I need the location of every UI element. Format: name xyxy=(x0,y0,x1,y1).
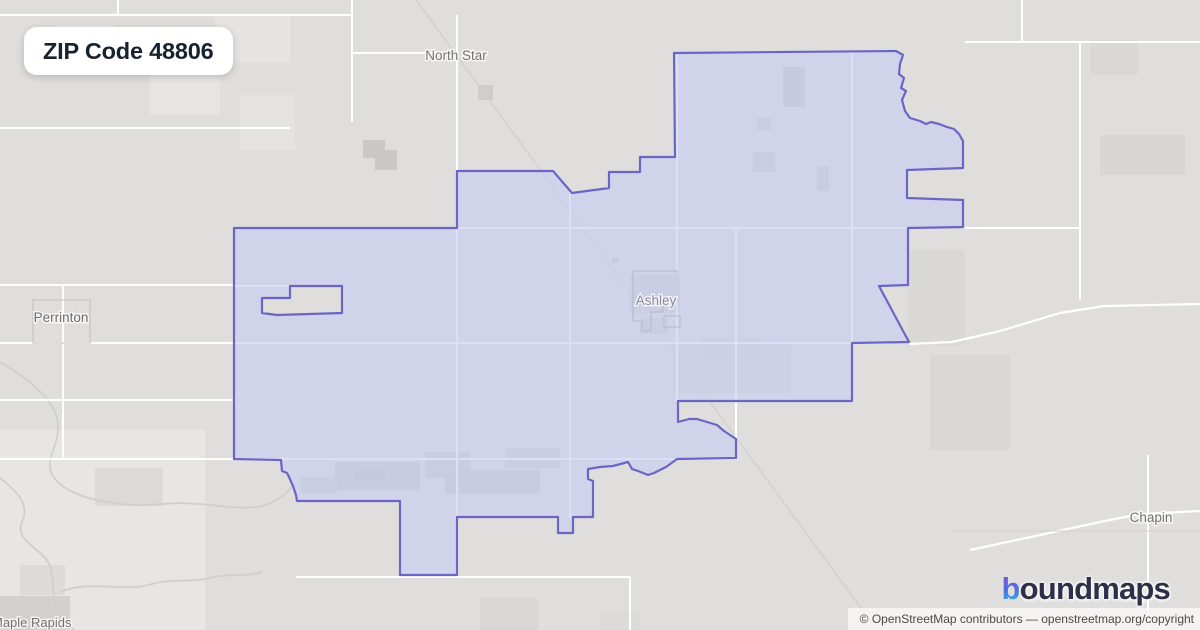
page: North StarPerrintonAshleyChapinMaple Rap… xyxy=(0,0,1200,630)
terrain-patch xyxy=(375,150,397,170)
zip-title-badge: ZIP Code 48806 xyxy=(24,27,233,75)
map-label-north-star: North Star xyxy=(425,48,487,63)
terrain-patch xyxy=(95,468,163,506)
terrain-patch xyxy=(930,355,1010,450)
attribution-bar: © OpenStreetMap contributors — openstree… xyxy=(848,608,1200,630)
map-label-maple-rapids: Maple Rapids xyxy=(0,615,72,630)
terrain-patch xyxy=(1090,40,1138,75)
terrain-patch xyxy=(20,565,65,595)
boundmaps-logo: boundmaps xyxy=(1002,573,1170,604)
terrain-patch xyxy=(600,612,640,630)
map-label-ashley: Ashley xyxy=(636,293,677,308)
map-label-perrinton: Perrinton xyxy=(34,310,89,325)
terrain-patch xyxy=(908,250,965,345)
attribution-text[interactable]: © OpenStreetMap contributors — openstree… xyxy=(860,612,1200,626)
boundmaps-logo-text: oundmaps xyxy=(1020,571,1170,606)
map-label-chapin: Chapin xyxy=(1130,510,1173,525)
terrain-patch xyxy=(480,598,538,630)
zip-title: ZIP Code 48806 xyxy=(43,38,214,65)
terrain-patch xyxy=(1100,135,1185,175)
map-svg[interactable]: North StarPerrintonAshleyChapinMaple Rap… xyxy=(0,0,1200,630)
boundmaps-logo-mark: b xyxy=(1002,571,1020,606)
terrain-patch xyxy=(240,95,295,150)
